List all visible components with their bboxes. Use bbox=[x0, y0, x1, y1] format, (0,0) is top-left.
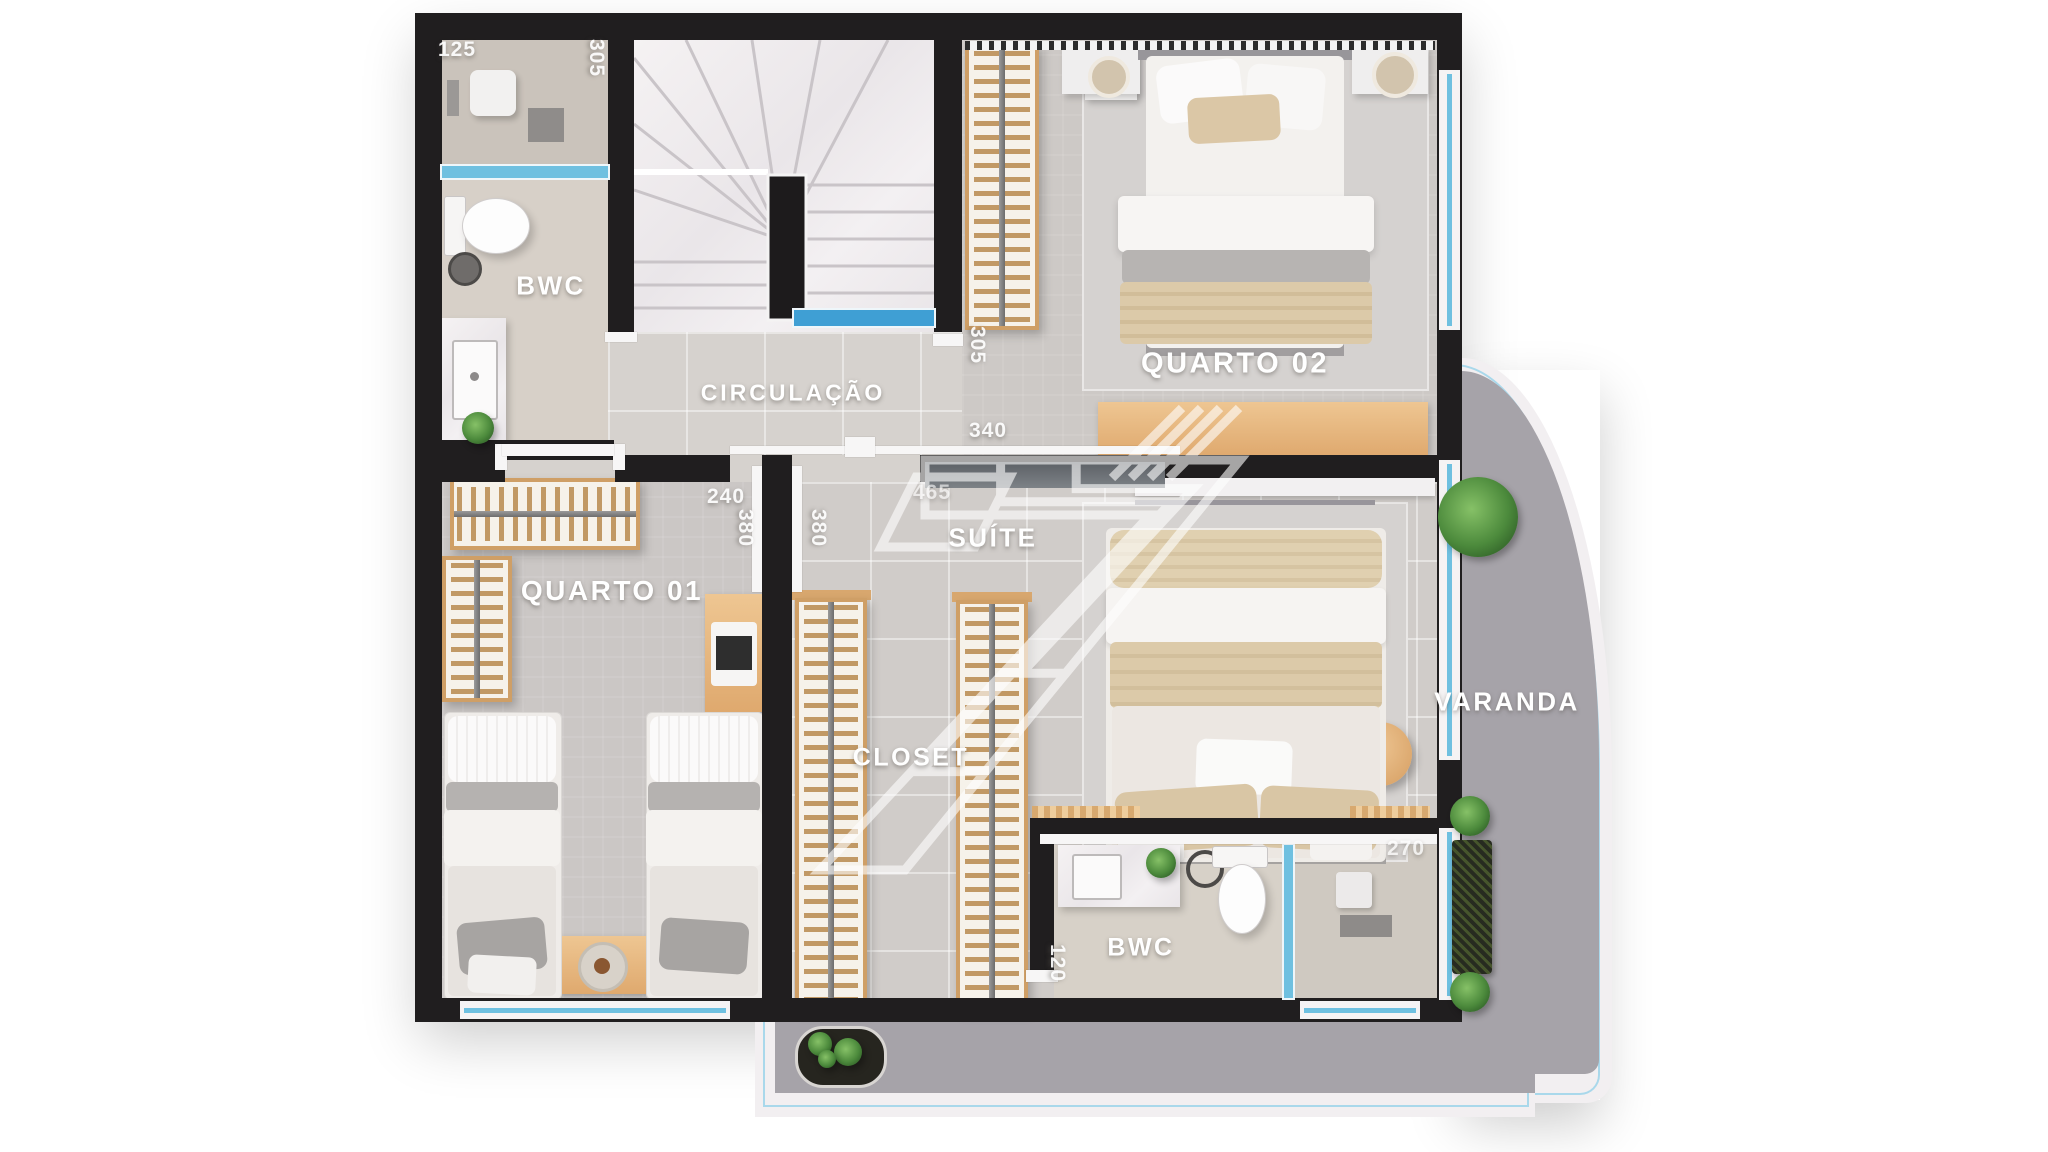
varanda-plant-small2-icon bbox=[1450, 972, 1490, 1012]
dim-label-stairs-width: 305 bbox=[965, 326, 989, 364]
dim-label-bwc-suite-width: 270 bbox=[1387, 837, 1425, 861]
terrace-cactus2-icon bbox=[834, 1038, 862, 1066]
watermark-7-logo bbox=[770, 370, 1310, 890]
dim-label-suite-door: 340 bbox=[969, 419, 1007, 443]
door-leaf-quarto01 bbox=[502, 444, 614, 456]
dim-label-closet-wall-left: 380 bbox=[733, 509, 757, 547]
laptop-keyboard-icon bbox=[716, 636, 752, 670]
quarto02-blanket-beige bbox=[1120, 282, 1372, 344]
quarto01-wardrobe-left bbox=[442, 556, 512, 702]
room-label-closet: CLOSET bbox=[853, 744, 969, 773]
shower-head-icon bbox=[1336, 872, 1372, 908]
cushion-icon bbox=[658, 917, 749, 975]
varanda-plant-small-icon bbox=[1450, 796, 1490, 836]
dim-label-closet-wall-right: 380 bbox=[806, 509, 830, 547]
faucet-icon bbox=[470, 372, 479, 381]
pillow-icon bbox=[448, 716, 556, 782]
tray-cup-icon bbox=[594, 958, 610, 974]
window-quarto01-glass bbox=[464, 1008, 726, 1013]
varanda-planter-icon bbox=[1452, 840, 1492, 974]
wall-stairs-right bbox=[934, 40, 962, 332]
shower-glass-top-bwc bbox=[442, 166, 608, 178]
bwc-plant-icon bbox=[462, 412, 494, 444]
wall-bwc-right bbox=[608, 40, 634, 336]
jamb-quarto02-door bbox=[933, 334, 963, 346]
room-label-circulacao: CIRCULAÇÃO bbox=[701, 380, 886, 407]
window-bwc-suite-south-glass bbox=[1304, 1008, 1416, 1013]
quilt-icon bbox=[444, 810, 560, 866]
dim-label-suite-width: 465 bbox=[913, 481, 951, 505]
wall-top bbox=[415, 13, 1462, 40]
room-label-quarto-02: QUARTO 02 bbox=[1141, 348, 1329, 381]
quarto02-wardrobe-rack bbox=[965, 44, 1039, 330]
room-label-bwc-suite: BWC bbox=[1107, 934, 1174, 963]
room-label-quarto-01: QUARTO 01 bbox=[521, 575, 703, 607]
room-label-suite: SUÍTE bbox=[948, 523, 1037, 554]
pillow-icon bbox=[467, 954, 537, 996]
wall-box-icon bbox=[528, 108, 564, 142]
wall-left bbox=[415, 13, 442, 1022]
blanket-gray-icon bbox=[446, 782, 558, 812]
shower-mat-icon bbox=[1340, 915, 1392, 937]
varanda-plant-icon bbox=[1438, 477, 1518, 557]
pillow-accent-icon bbox=[1187, 94, 1281, 145]
quarto02-duvet bbox=[1118, 196, 1374, 252]
room-label-bwc-top: BWC bbox=[516, 271, 586, 302]
stairs-guard-glass bbox=[794, 310, 934, 326]
trash-bin-icon bbox=[448, 252, 482, 286]
terrace-cactus3-icon bbox=[818, 1050, 836, 1068]
quilt-icon bbox=[646, 810, 762, 866]
pillow-icon bbox=[650, 716, 758, 782]
blanket-gray-icon bbox=[648, 782, 760, 812]
floor-plan: BWC CIRCULAÇÃO QUARTO 01 QUARTO 02 SUÍTE… bbox=[0, 0, 2048, 1152]
dim-label-bwc-width: 125 bbox=[438, 38, 476, 62]
towel-bar-icon bbox=[447, 80, 459, 116]
lamp-right-icon bbox=[1372, 52, 1418, 98]
jamb-quarto01-door bbox=[613, 444, 625, 470]
window-quarto02-glass bbox=[1447, 74, 1452, 326]
tissue-holder-icon bbox=[470, 70, 516, 116]
toilet-bowl-icon bbox=[462, 198, 530, 254]
quarto02-blanket-gray bbox=[1122, 250, 1370, 284]
dim-label-bwc-depth: 305 bbox=[584, 39, 608, 77]
quarto01-wardrobe-top bbox=[450, 478, 640, 550]
jamb-bwc-door bbox=[605, 332, 637, 342]
terrace-floor bbox=[775, 1022, 1535, 1093]
lamp-left-icon bbox=[1088, 56, 1130, 98]
dim-label-bwc-suite-door: 120 bbox=[1045, 944, 1069, 982]
room-label-varanda: VARANDA bbox=[1434, 687, 1580, 718]
stairs-icon bbox=[634, 40, 934, 332]
curtain-track-icon bbox=[965, 41, 1435, 50]
dim-label-hall-width: 240 bbox=[707, 485, 745, 509]
wall-quarto01-north-b bbox=[615, 455, 730, 482]
